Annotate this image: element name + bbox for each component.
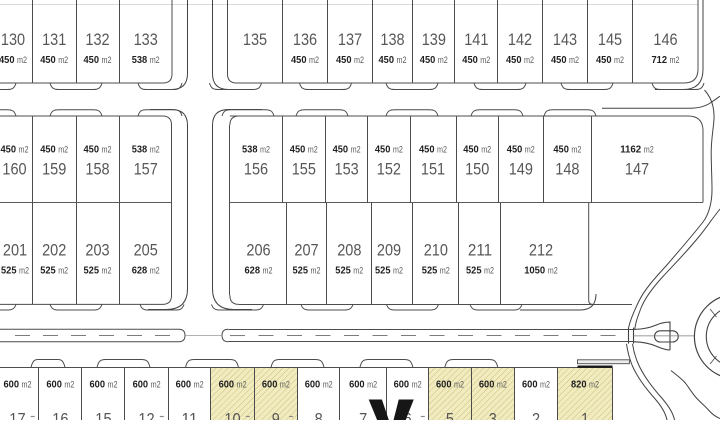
svg-text:m2: m2: [480, 55, 490, 66]
svg-text:m2: m2: [108, 379, 118, 390]
svg-text:207: 207: [294, 240, 318, 259]
svg-text:205: 205: [134, 240, 158, 259]
svg-text:m2: m2: [263, 266, 273, 277]
svg-text:m2: m2: [58, 266, 68, 277]
svg-text:450: 450: [379, 55, 395, 66]
svg-text:m2: m2: [540, 379, 550, 390]
svg-text:141: 141: [464, 30, 488, 49]
svg-text:538: 538: [242, 145, 258, 156]
svg-text:11: 11: [181, 410, 197, 421]
svg-text:203: 203: [85, 240, 109, 259]
svg-text:m2: m2: [614, 55, 624, 66]
svg-text:143: 143: [553, 30, 577, 49]
svg-text:151: 151: [421, 159, 445, 178]
svg-text:12: 12: [138, 410, 154, 421]
svg-text:450: 450: [553, 145, 569, 156]
svg-text:160: 160: [2, 159, 26, 178]
svg-text:525: 525: [466, 266, 482, 277]
svg-text:10: 10: [224, 410, 240, 421]
svg-text:m2: m2: [393, 266, 403, 277]
svg-text:m2: m2: [351, 145, 361, 156]
svg-text:m2: m2: [151, 379, 161, 390]
svg-text:525: 525: [293, 266, 309, 277]
svg-text:m2: m2: [569, 55, 579, 66]
svg-text:m2: m2: [102, 266, 112, 277]
svg-text:133: 133: [134, 30, 158, 49]
svg-text:525: 525: [375, 266, 391, 277]
svg-text:138: 138: [380, 30, 404, 49]
svg-text:m2: m2: [571, 145, 581, 156]
svg-text:m2: m2: [19, 266, 29, 277]
svg-text:146: 146: [653, 30, 677, 49]
svg-text:159: 159: [42, 159, 66, 178]
svg-text:450: 450: [1, 145, 17, 156]
svg-text:9: 9: [272, 410, 280, 421]
svg-text:600: 600: [219, 379, 235, 390]
svg-text:525: 525: [40, 266, 56, 277]
svg-text:3: 3: [489, 410, 497, 421]
svg-text:m2: m2: [589, 379, 599, 390]
svg-text:628: 628: [245, 266, 261, 277]
svg-text:450: 450: [40, 145, 56, 156]
svg-text:m2: m2: [102, 145, 112, 156]
svg-text:m2: m2: [525, 145, 535, 156]
svg-text:148: 148: [555, 159, 579, 178]
svg-text:131: 131: [42, 30, 66, 49]
svg-text:150: 150: [465, 159, 489, 178]
svg-text:450: 450: [506, 55, 522, 66]
svg-text:211: 211: [468, 240, 492, 259]
svg-text:820: 820: [571, 379, 587, 390]
svg-text:m2: m2: [497, 379, 507, 390]
svg-text:132: 132: [85, 30, 109, 49]
svg-text:m2: m2: [237, 379, 247, 390]
svg-text:600: 600: [262, 379, 278, 390]
svg-text:450: 450: [507, 145, 523, 156]
svg-text:538: 538: [132, 55, 148, 66]
svg-text:600: 600: [349, 379, 365, 390]
svg-text:156: 156: [244, 159, 268, 178]
svg-text:155: 155: [292, 159, 316, 178]
svg-text:m2: m2: [323, 379, 333, 390]
svg-text:525: 525: [422, 266, 438, 277]
svg-text:m2: m2: [150, 145, 160, 156]
svg-text:600: 600: [176, 379, 192, 390]
svg-text:7: 7: [359, 410, 367, 421]
svg-text:m2: m2: [393, 145, 403, 156]
svg-text:712: 712: [652, 55, 668, 66]
svg-text:450: 450: [84, 145, 100, 156]
svg-text:17: 17: [9, 410, 25, 421]
svg-text:209: 209: [377, 240, 401, 259]
svg-text:210: 210: [424, 240, 448, 259]
svg-text:8: 8: [315, 410, 323, 421]
svg-text:600: 600: [436, 379, 452, 390]
svg-text:525: 525: [84, 266, 100, 277]
svg-text:450: 450: [333, 145, 349, 156]
svg-text:137: 137: [338, 30, 362, 49]
svg-text:450: 450: [0, 55, 15, 66]
svg-text:m2: m2: [644, 145, 654, 156]
svg-text:139: 139: [422, 30, 446, 49]
svg-text:m2: m2: [481, 145, 491, 156]
svg-text:206: 206: [246, 240, 270, 259]
svg-text:m2: m2: [454, 379, 464, 390]
svg-text:m2: m2: [64, 379, 74, 390]
svg-text:212: 212: [529, 240, 553, 259]
svg-text:1: 1: [581, 410, 589, 421]
svg-text:208: 208: [337, 240, 361, 259]
svg-text:m2: m2: [309, 55, 319, 66]
svg-text:201: 201: [3, 240, 27, 259]
svg-text:450: 450: [40, 55, 56, 66]
svg-text:m2: m2: [354, 55, 364, 66]
svg-text:m2: m2: [102, 55, 112, 66]
svg-text:15: 15: [95, 410, 111, 421]
svg-text:16: 16: [52, 410, 68, 421]
svg-text:538: 538: [132, 145, 148, 156]
svg-text:157: 157: [134, 159, 158, 178]
svg-text:m2: m2: [150, 266, 160, 277]
svg-text:450: 450: [596, 55, 612, 66]
svg-text:600: 600: [305, 379, 321, 390]
svg-text:m2: m2: [260, 145, 270, 156]
svg-text:m2: m2: [670, 55, 680, 66]
svg-text:m2: m2: [524, 55, 534, 66]
svg-text:m2: m2: [437, 145, 447, 156]
svg-text:m2: m2: [548, 266, 558, 277]
svg-text:135: 135: [243, 30, 267, 49]
svg-text:142: 142: [508, 30, 532, 49]
svg-text:450: 450: [463, 145, 479, 156]
svg-text:2: 2: [532, 410, 540, 421]
svg-text:152: 152: [377, 159, 401, 178]
svg-text:600: 600: [90, 379, 106, 390]
svg-text:m2: m2: [280, 379, 290, 390]
svg-text:1050: 1050: [524, 266, 545, 277]
svg-text:145: 145: [598, 30, 622, 49]
svg-text:m2: m2: [22, 379, 32, 390]
svg-text:600: 600: [46, 379, 62, 390]
svg-text:m2: m2: [308, 145, 318, 156]
svg-text:450: 450: [419, 145, 435, 156]
svg-text:m2: m2: [412, 379, 422, 390]
svg-text:m2: m2: [440, 266, 450, 277]
svg-text:m2: m2: [353, 266, 363, 277]
svg-text:450: 450: [336, 55, 352, 66]
svg-text:m2: m2: [397, 55, 407, 66]
svg-text:m2: m2: [150, 55, 160, 66]
svg-text:525: 525: [1, 266, 17, 277]
svg-text:m2: m2: [17, 55, 27, 66]
svg-text:m2: m2: [438, 55, 448, 66]
svg-text:130: 130: [1, 30, 25, 49]
svg-text:m2: m2: [484, 266, 494, 277]
svg-text:450: 450: [290, 145, 306, 156]
svg-text:m2: m2: [311, 266, 321, 277]
svg-text:m2: m2: [58, 55, 68, 66]
svg-text:5: 5: [446, 410, 454, 421]
svg-text:450: 450: [420, 55, 436, 66]
svg-text:450: 450: [375, 145, 391, 156]
svg-text:525: 525: [335, 266, 351, 277]
svg-text:m2: m2: [19, 145, 29, 156]
svg-text:450: 450: [291, 55, 307, 66]
svg-text:600: 600: [394, 379, 410, 390]
svg-text:136: 136: [293, 30, 317, 49]
svg-text:600: 600: [133, 379, 149, 390]
svg-text:m2: m2: [194, 379, 204, 390]
svg-text:m2: m2: [367, 379, 377, 390]
svg-text:149: 149: [509, 159, 533, 178]
svg-text:158: 158: [85, 159, 109, 178]
svg-text:600: 600: [522, 379, 538, 390]
svg-text:m2: m2: [58, 145, 68, 156]
svg-text:153: 153: [335, 159, 359, 178]
svg-text:600: 600: [4, 379, 20, 390]
svg-text:450: 450: [462, 55, 478, 66]
svg-text:450: 450: [551, 55, 567, 66]
svg-text:450: 450: [84, 55, 100, 66]
svg-text:147: 147: [625, 159, 649, 178]
svg-text:628: 628: [132, 266, 148, 277]
svg-text:1162: 1162: [620, 145, 641, 156]
svg-text:600: 600: [479, 379, 495, 390]
svg-text:202: 202: [42, 240, 66, 259]
